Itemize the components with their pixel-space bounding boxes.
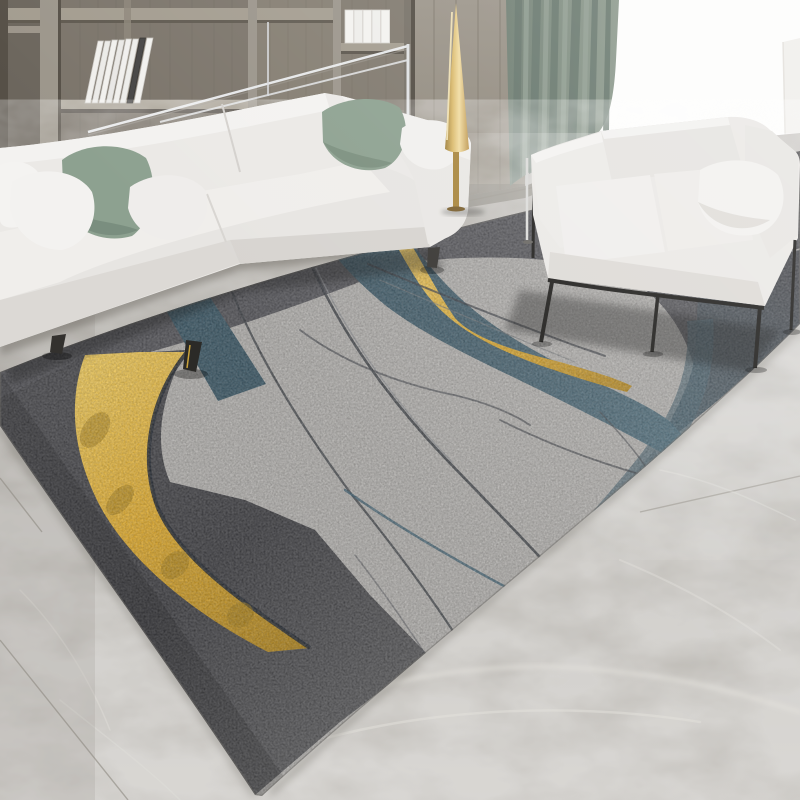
scene-canvas bbox=[0, 0, 800, 800]
ambient-light-overlay bbox=[0, 0, 800, 800]
living-room-photo bbox=[0, 0, 800, 800]
